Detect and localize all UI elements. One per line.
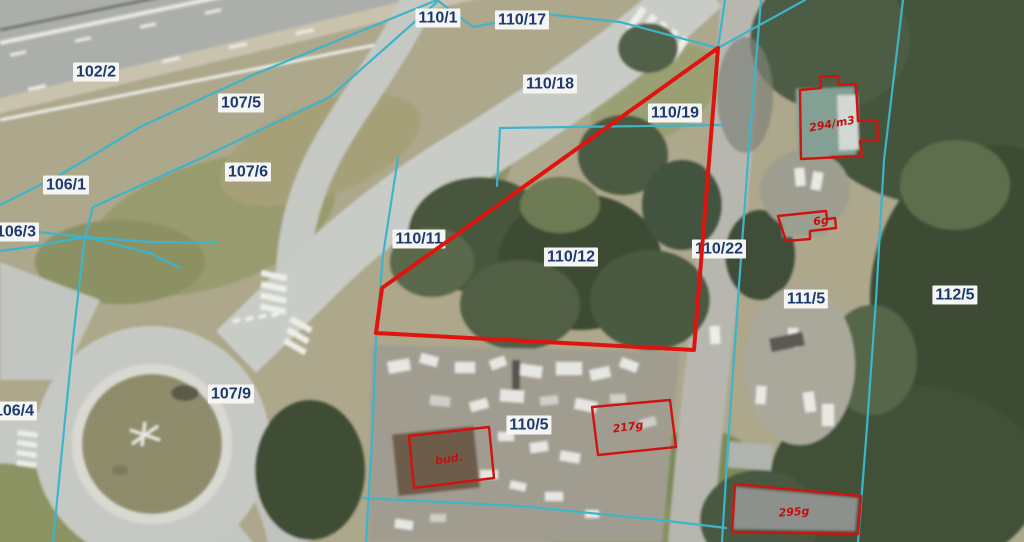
cadastral-map[interactable]: 102/2107/5107/6106/1106/3106/4107/9110/1… bbox=[0, 0, 1024, 542]
building-label: bud. bbox=[434, 451, 463, 468]
building-label: 217g bbox=[612, 418, 644, 435]
building-label-layer: 294/m36gbud.217g295g bbox=[0, 0, 1024, 542]
building-label: 6g bbox=[813, 214, 830, 229]
building-label: 294/m3 bbox=[808, 114, 856, 135]
building-label: 295g bbox=[778, 504, 810, 519]
